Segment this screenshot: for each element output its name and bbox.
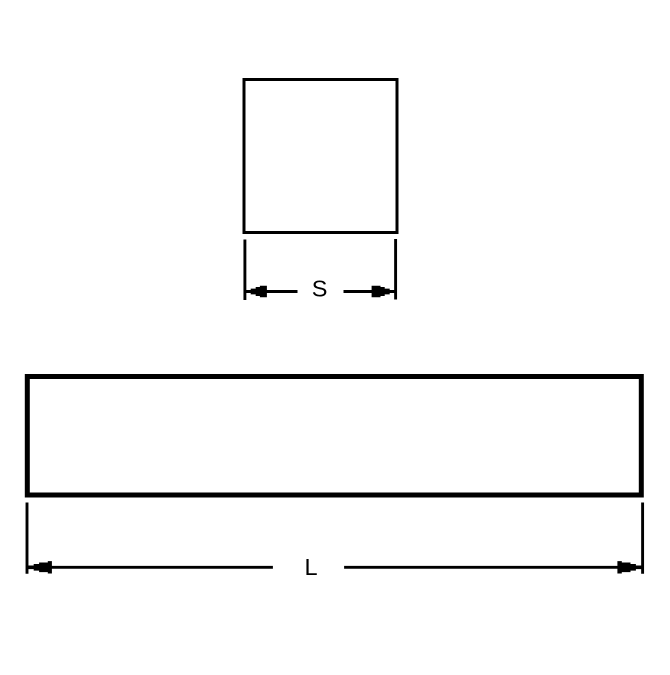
svg-text:L: L <box>304 554 317 580</box>
svg-text:S: S <box>312 276 328 302</box>
